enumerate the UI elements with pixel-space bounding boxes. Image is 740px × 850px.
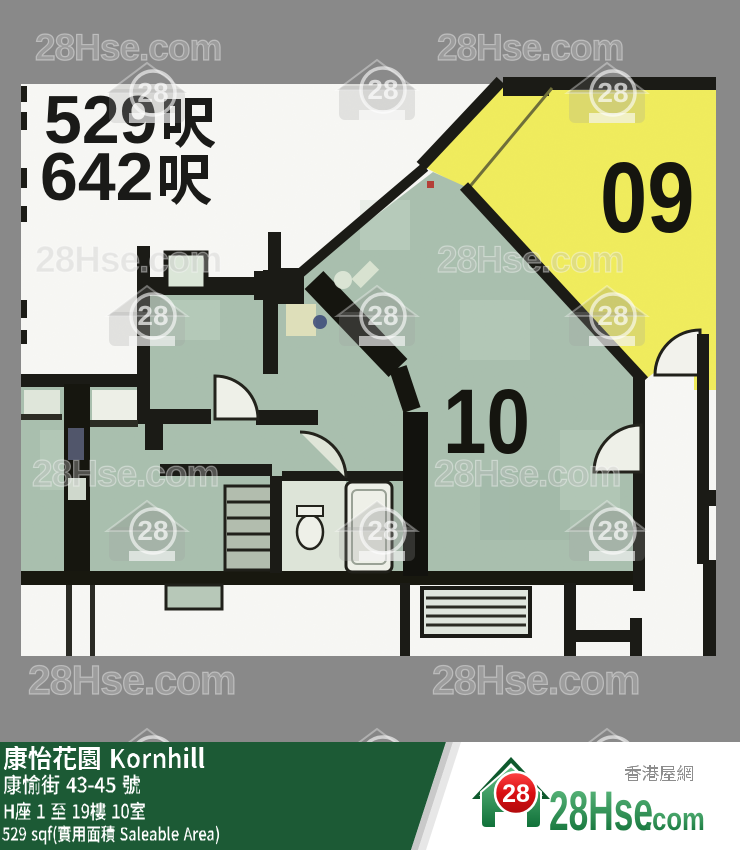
svg-text:28: 28 — [502, 780, 530, 808]
svg-text:09: 09 — [600, 141, 695, 253]
svg-text:642: 642 — [40, 139, 153, 215]
svg-text:28Hse.com: 28Hse.com — [437, 239, 623, 280]
svg-text:28Hse.com: 28Hse.com — [434, 453, 620, 494]
svg-text:28Hse: 28Hse — [549, 780, 653, 842]
svg-text:28: 28 — [367, 300, 398, 331]
svg-text:28Hse.com: 28Hse.com — [35, 27, 221, 68]
svg-text:28: 28 — [367, 74, 398, 105]
svg-text:28Hse.com: 28Hse.com — [35, 239, 221, 280]
svg-text:28Hse.com: 28Hse.com — [32, 453, 218, 494]
svg-text:28Hse.com: 28Hse.com — [432, 657, 640, 703]
svg-text:28: 28 — [367, 515, 398, 546]
svg-text:.com: .com — [645, 802, 705, 837]
svg-text:28: 28 — [137, 77, 168, 108]
svg-text:28: 28 — [597, 77, 628, 108]
svg-text:28: 28 — [137, 300, 168, 331]
svg-text:28: 28 — [137, 515, 168, 546]
svg-text:28Hse.com: 28Hse.com — [437, 27, 623, 68]
svg-text:28: 28 — [597, 515, 628, 546]
svg-text:28: 28 — [597, 300, 628, 331]
svg-text:28Hse.com: 28Hse.com — [28, 657, 236, 703]
